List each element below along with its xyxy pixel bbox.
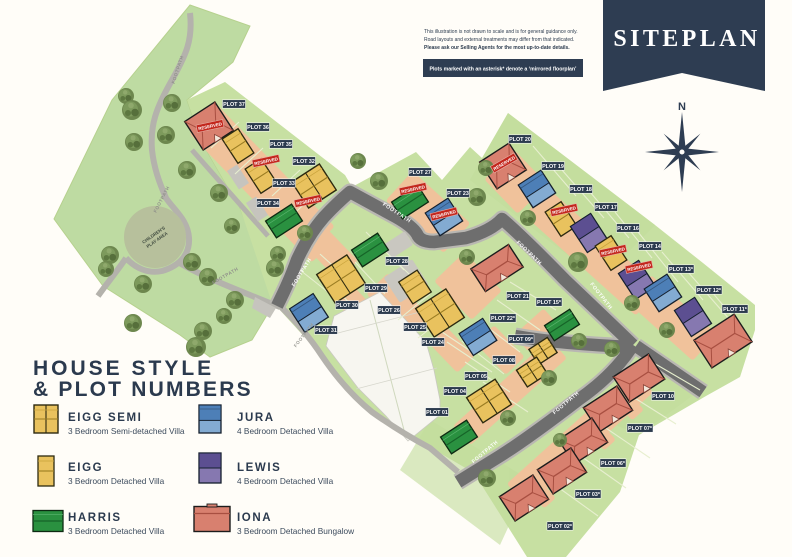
svg-text:PLOT 01: PLOT 01 (426, 410, 448, 416)
svg-text:SITEPLAN: SITEPLAN (613, 26, 760, 52)
svg-text:PLOT 31: PLOT 31 (315, 328, 337, 334)
svg-text:PLOT 20: PLOT 20 (509, 137, 531, 143)
svg-text:PLOT 11*: PLOT 11* (723, 307, 748, 313)
svg-text:N: N (678, 101, 686, 113)
svg-text:PLOT 18: PLOT 18 (570, 187, 592, 193)
svg-text:PLOT 14: PLOT 14 (639, 244, 661, 250)
svg-text:4 Bedroom Detached Villa: 4 Bedroom Detached Villa (237, 426, 334, 436)
svg-text:IONA: IONA (237, 512, 272, 524)
svg-text:Please ask our Selling Agents: Please ask our Selling Agents for the mo… (424, 45, 570, 51)
svg-text:PLOT 19: PLOT 19 (542, 164, 564, 170)
svg-text:PLOT 04: PLOT 04 (444, 389, 466, 395)
svg-text:PLOT 23: PLOT 23 (447, 191, 469, 197)
svg-text:PLOT 28: PLOT 28 (386, 259, 408, 265)
svg-text:3 Bedroom Semi-detached Villa: 3 Bedroom Semi-detached Villa (68, 426, 185, 436)
svg-text:EIGG: EIGG (68, 462, 103, 474)
svg-text:PLOT 32: PLOT 32 (293, 159, 315, 165)
svg-text:PLOT 10: PLOT 10 (652, 394, 674, 400)
svg-text:PLOT 34: PLOT 34 (257, 201, 279, 207)
svg-text:PLOT 25: PLOT 25 (404, 325, 426, 331)
svg-text:PLOT 29: PLOT 29 (365, 286, 387, 292)
svg-text:PLOT 22*: PLOT 22* (491, 316, 516, 322)
svg-text:HARRIS: HARRIS (68, 512, 122, 524)
svg-text:PLOT 06*: PLOT 06* (601, 461, 626, 467)
svg-text:3 Bedroom Detached Bungalow: 3 Bedroom Detached Bungalow (237, 526, 355, 536)
svg-text:PLOT 35: PLOT 35 (270, 142, 292, 148)
svg-text:PLOT 03*: PLOT 03* (576, 492, 601, 498)
svg-text:PLOT 16: PLOT 16 (617, 226, 639, 232)
svg-text:PLOT 26: PLOT 26 (378, 308, 400, 314)
svg-text:PLOT 07*: PLOT 07* (628, 426, 653, 432)
svg-text:PLOT 33: PLOT 33 (273, 181, 295, 187)
svg-text:LEWIS: LEWIS (237, 462, 281, 474)
svg-text:PLOT 02*: PLOT 02* (548, 524, 573, 530)
svg-text:& PLOT NUMBERS: & PLOT NUMBERS (33, 378, 253, 401)
svg-text:Plots marked with an asterisk*: Plots marked with an asterisk* denote a … (429, 67, 577, 73)
svg-text:PLOT 27: PLOT 27 (409, 170, 431, 176)
svg-text:PLOT 12*: PLOT 12* (697, 288, 722, 294)
svg-text:PLOT 13*: PLOT 13* (669, 267, 694, 273)
svg-text:HOUSE STYLE: HOUSE STYLE (33, 357, 214, 380)
svg-text:3 Bedroom Detached Villa: 3 Bedroom Detached Villa (68, 526, 165, 536)
svg-text:PLOT 30: PLOT 30 (336, 303, 358, 309)
svg-text:3 Bedroom Detached Villa: 3 Bedroom Detached Villa (68, 476, 165, 486)
svg-text:PLOT 37: PLOT 37 (223, 102, 245, 108)
svg-text:PLOT 08: PLOT 08 (493, 358, 515, 364)
svg-text:PLOT 15*: PLOT 15* (537, 300, 562, 306)
svg-text:PLOT 17: PLOT 17 (595, 205, 617, 211)
svg-text:EIGG SEMI: EIGG SEMI (68, 412, 142, 424)
svg-text:This illustration is not drawn: This illustration is not drawn to scale … (424, 29, 578, 35)
svg-text:Road layouts and external trea: Road layouts and external treatments may… (424, 37, 574, 43)
svg-text:4 Bedroom Detached Villa: 4 Bedroom Detached Villa (237, 476, 334, 486)
svg-text:JURA: JURA (237, 412, 275, 424)
svg-text:PLOT 24: PLOT 24 (422, 340, 444, 346)
svg-text:PLOT 09*: PLOT 09* (509, 337, 534, 343)
svg-text:PLOT 21: PLOT 21 (507, 294, 529, 300)
svg-text:PLOT 05: PLOT 05 (465, 374, 487, 380)
svg-text:PLOT 36: PLOT 36 (247, 125, 269, 131)
